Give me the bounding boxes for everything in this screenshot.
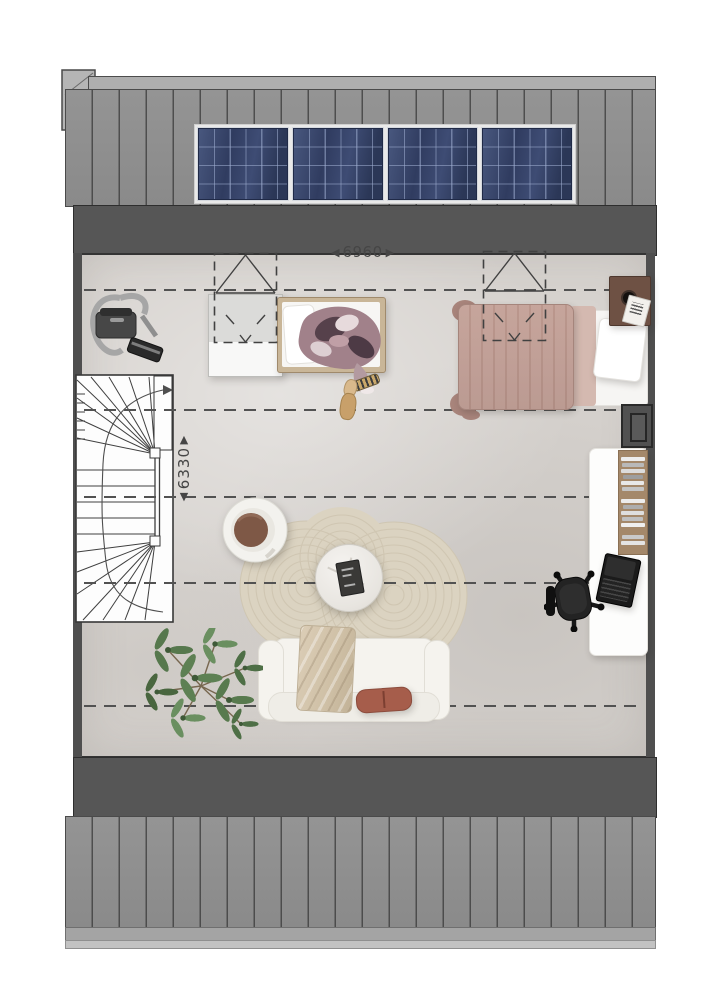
dimension-depth: ▲ 6330 ▼	[172, 434, 196, 502]
eave-edge	[65, 940, 656, 949]
solar-panel	[387, 127, 479, 201]
duct-inner	[630, 413, 647, 442]
plant	[133, 628, 263, 740]
solar-panel	[197, 127, 289, 201]
roof-bottom	[65, 816, 656, 929]
duct	[621, 404, 653, 448]
dim-width-value: 6960	[342, 243, 382, 261]
solar-panel-array	[194, 124, 576, 204]
skylight	[213, 252, 278, 344]
sofa-pillow	[355, 686, 413, 714]
armchair	[222, 497, 290, 565]
dim-arrow-left: ◀	[331, 247, 339, 258]
solar-panel	[481, 127, 573, 201]
guide-line	[84, 289, 644, 291]
dim-depth-value: 6330	[175, 447, 193, 489]
solar-panel	[292, 127, 384, 201]
magazine	[335, 559, 365, 597]
skylight	[482, 250, 547, 342]
floor-plan-canvas: ◀ 6960 ▶ ▲ 6330 ▼	[0, 0, 720, 983]
dim-arrow-down: ▼	[180, 491, 188, 502]
dim-arrow-right: ▶	[386, 247, 394, 258]
vacuum-cleaner	[86, 284, 164, 372]
duvet-tassel	[462, 410, 480, 420]
throw-blanket	[296, 625, 356, 714]
staircase	[75, 374, 175, 624]
office-chair	[544, 562, 606, 632]
double-bed-pillow	[593, 317, 648, 382]
sofa	[258, 632, 448, 722]
dimension-width: ◀ 6960 ▶	[331, 243, 394, 261]
book-text	[629, 302, 643, 316]
bottom-wall-band	[73, 757, 657, 818]
guide-line	[84, 496, 644, 498]
bookshelf	[618, 450, 648, 555]
coffee-table	[315, 544, 383, 612]
sofa-backrest	[268, 692, 440, 722]
dim-arrow-up: ▲	[180, 434, 188, 445]
